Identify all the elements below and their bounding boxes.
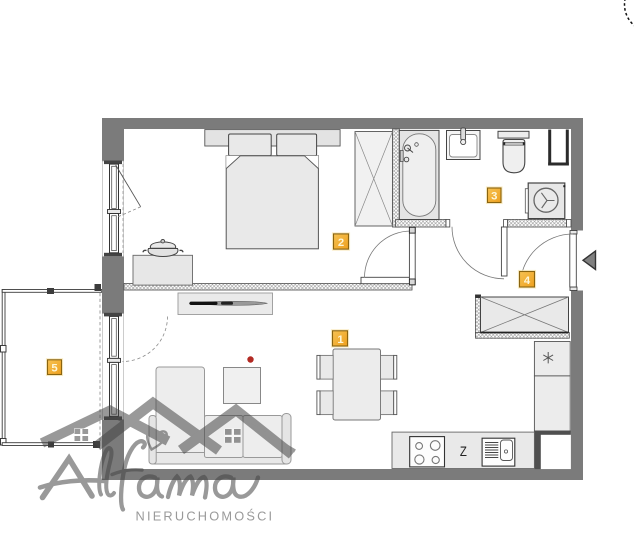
svg-text:NIERUCHOMOŚCI: NIERUCHOMOŚCI <box>136 509 275 524</box>
svg-text:2: 2 <box>338 237 344 249</box>
svg-text:3: 3 <box>491 190 497 202</box>
svg-text:4: 4 <box>524 275 531 287</box>
svg-text:5: 5 <box>51 362 57 374</box>
svg-text:Z: Z <box>460 444 467 459</box>
svg-text:1: 1 <box>337 334 343 346</box>
